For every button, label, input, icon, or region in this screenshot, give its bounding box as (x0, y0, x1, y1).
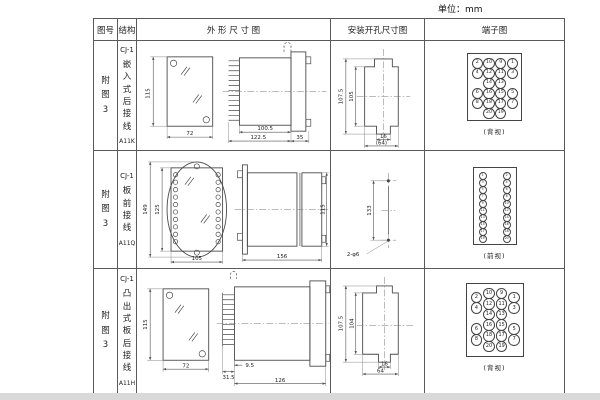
row1-fig-cell: 附图3 (94, 41, 118, 151)
dim-install-overall: (64) (376, 140, 387, 146)
row3-mount-type: 凸出式板后接线 (122, 288, 132, 374)
row1-terminal-cell: 2109141211314136161558181772019 (背视) (425, 41, 564, 151)
dim-side-terminal-depth: 31.5 (222, 375, 234, 381)
row3-fig-cell: 附图3 (94, 269, 118, 393)
dim-hole-spacing: 133 (367, 205, 373, 216)
row2-install-cell: 133 2-φ6 (331, 151, 425, 269)
row1-install-cell: 107.5 105 16 (64) (331, 41, 425, 151)
terminal-view-label: (前视) (483, 250, 505, 260)
terminal-screw-columns (173, 173, 220, 244)
row2-structure-cell: CJ-1 板前接线 A11Q (118, 151, 137, 269)
dim-side-length: 126 (275, 378, 286, 384)
terminal-18: 18 (483, 330, 495, 342)
terminal-19: 19 (479, 235, 487, 243)
row2-model: CJ-1 (120, 172, 134, 180)
dim-front-outer-height: 149 (143, 204, 149, 215)
hanging-hook (231, 271, 237, 278)
dim-side-length: 156 (277, 254, 288, 260)
dim-front-height: 115 (145, 88, 151, 98)
row1-outline-cell: 115 72 100.5 122.5 (137, 41, 331, 151)
row3-install-cell: 107.5 104 16 64 (331, 269, 425, 393)
side-view: 100.5 122.5 35 (223, 42, 327, 143)
header-structure: 结构 (118, 19, 137, 41)
terminal-19: 19 (495, 108, 506, 119)
header-outline: 外 形 尺 寸 图 (137, 19, 331, 41)
dim-install-tab: 16 (381, 362, 388, 368)
row2-mount-type: 板前接线 (122, 185, 132, 234)
front-view: 149 125 105 (143, 162, 226, 264)
terminal-4: 4 (472, 68, 483, 79)
row2-fig-no: 附图3 (100, 188, 112, 231)
row1-mount-type: 嵌入式后接线 (122, 59, 132, 133)
hatch-mark (193, 95, 202, 104)
dim-front-height: 115 (143, 319, 149, 329)
hatch-mark (185, 177, 194, 186)
row1-outline-drawing: 115 72 100.5 122.5 (137, 41, 330, 150)
dim-install-inner: 105 (349, 91, 355, 101)
dim-front-inner-height: 125 (155, 204, 161, 214)
row2-install-drawing: 133 2-φ6 (331, 151, 424, 268)
hanging-hook (284, 42, 291, 51)
row1-fig-no: 附图3 (100, 74, 112, 117)
row2-terminal-cell: 1234567891011121314151617181920 (前视) (425, 151, 564, 269)
hatch-mark (189, 332, 198, 341)
dim-install-outer: 107.5 (338, 316, 344, 332)
terminal-7: 7 (508, 334, 520, 346)
terminal-view-label: (背视) (483, 126, 505, 136)
dim-front-width: 72 (182, 364, 189, 370)
terminal-19: 19 (496, 341, 508, 353)
row3-terminal-cell: 2109141211314136161558181772019 (背视) (425, 269, 564, 393)
header-terminal: 端子图 (425, 19, 564, 41)
terminal-diagram-back-view: 2109141211314136161558181772019 (467, 53, 522, 121)
row3-code: A11H (119, 380, 135, 387)
front-view: 115 72 (145, 57, 212, 139)
dim-install-overall: 64 (377, 369, 384, 375)
dim-side-overall: 122.5 (250, 135, 266, 141)
hatch-mark (175, 305, 184, 314)
terminal-8: 8 (471, 334, 483, 346)
row1-install-drawing: 107.5 105 16 (64) (331, 41, 424, 150)
dim-install-inner: 104 (349, 318, 355, 329)
dim-side-height: 115 (321, 204, 327, 214)
row1-code: A11K (119, 138, 135, 145)
dim-front-width: 72 (186, 131, 193, 137)
dimension-table: 图号 结构 外 形 尺 寸 图 安装开孔尺寸图 端子图 附图3 CJ-1 嵌入式… (93, 18, 565, 394)
terminal-diagram-back-view: 2109141211314136161558181772019 (466, 283, 524, 357)
side-view: 9.5 31.5 126 (217, 271, 330, 386)
row3-install-drawing: 107.5 104 16 64 (331, 269, 424, 392)
row2-outline-cell: 149 125 105 156 (137, 151, 331, 269)
mounting-holes (380, 173, 396, 248)
terminal-diagram-front-view: 1234567891011121314151617181920 (473, 167, 517, 245)
terminal-20: 20 (503, 235, 511, 243)
row3-model: CJ-1 (120, 275, 134, 283)
terminal-20: 20 (483, 108, 494, 119)
dim-front-width: 105 (192, 256, 202, 262)
dim-side-body: 100.5 (257, 126, 273, 132)
row2-outline-drawing: 149 125 105 156 (137, 151, 330, 268)
document-page: 单位：mm 图号 结构 外 形 尺 寸 图 安装开孔尺寸图 端子图 附图3 CJ… (0, 0, 600, 400)
dim-side-offset: 9.5 (245, 363, 254, 369)
hatch-mark (201, 214, 210, 223)
row3-structure-cell: CJ-1 凸出式板后接线 A11H (118, 269, 137, 393)
page-bottom-strip (0, 393, 600, 400)
header-fig-no: 图号 (94, 19, 118, 41)
header-install: 安装开孔尺寸图 (331, 19, 425, 41)
dim-install-tab: 16 (380, 134, 387, 140)
terminal-3: 3 (507, 68, 518, 79)
dim-install-outer: 107.5 (338, 89, 344, 105)
terminal-8: 8 (472, 98, 483, 109)
unit-label: 单位：mm (438, 2, 483, 15)
row3-outline-drawing: 115 72 9.5 31.5 (137, 269, 330, 392)
hatch-mark (181, 67, 190, 76)
terminal-4: 4 (471, 302, 483, 314)
row3-outline-cell: 115 72 9.5 31.5 (137, 269, 331, 393)
terminal-17: 17 (496, 330, 508, 342)
terminal-3: 3 (508, 302, 520, 314)
row2-code: A11Q (119, 240, 135, 247)
row2-fig-cell: 附图3 (94, 151, 118, 269)
dim-side-flange: 35 (296, 135, 303, 141)
front-view: 115 72 (143, 289, 209, 372)
row1-structure-cell: CJ-1 嵌入式后接线 A11K (118, 41, 137, 151)
side-view: 156 115 (234, 165, 328, 262)
row1-model: CJ-1 (120, 46, 134, 54)
hole-size-label: 2-φ6 (347, 252, 360, 258)
terminal-7: 7 (507, 98, 518, 109)
row3-fig-no: 附图3 (100, 309, 112, 352)
terminal-20: 20 (483, 341, 495, 353)
terminal-view-label: (背视) (483, 362, 505, 372)
